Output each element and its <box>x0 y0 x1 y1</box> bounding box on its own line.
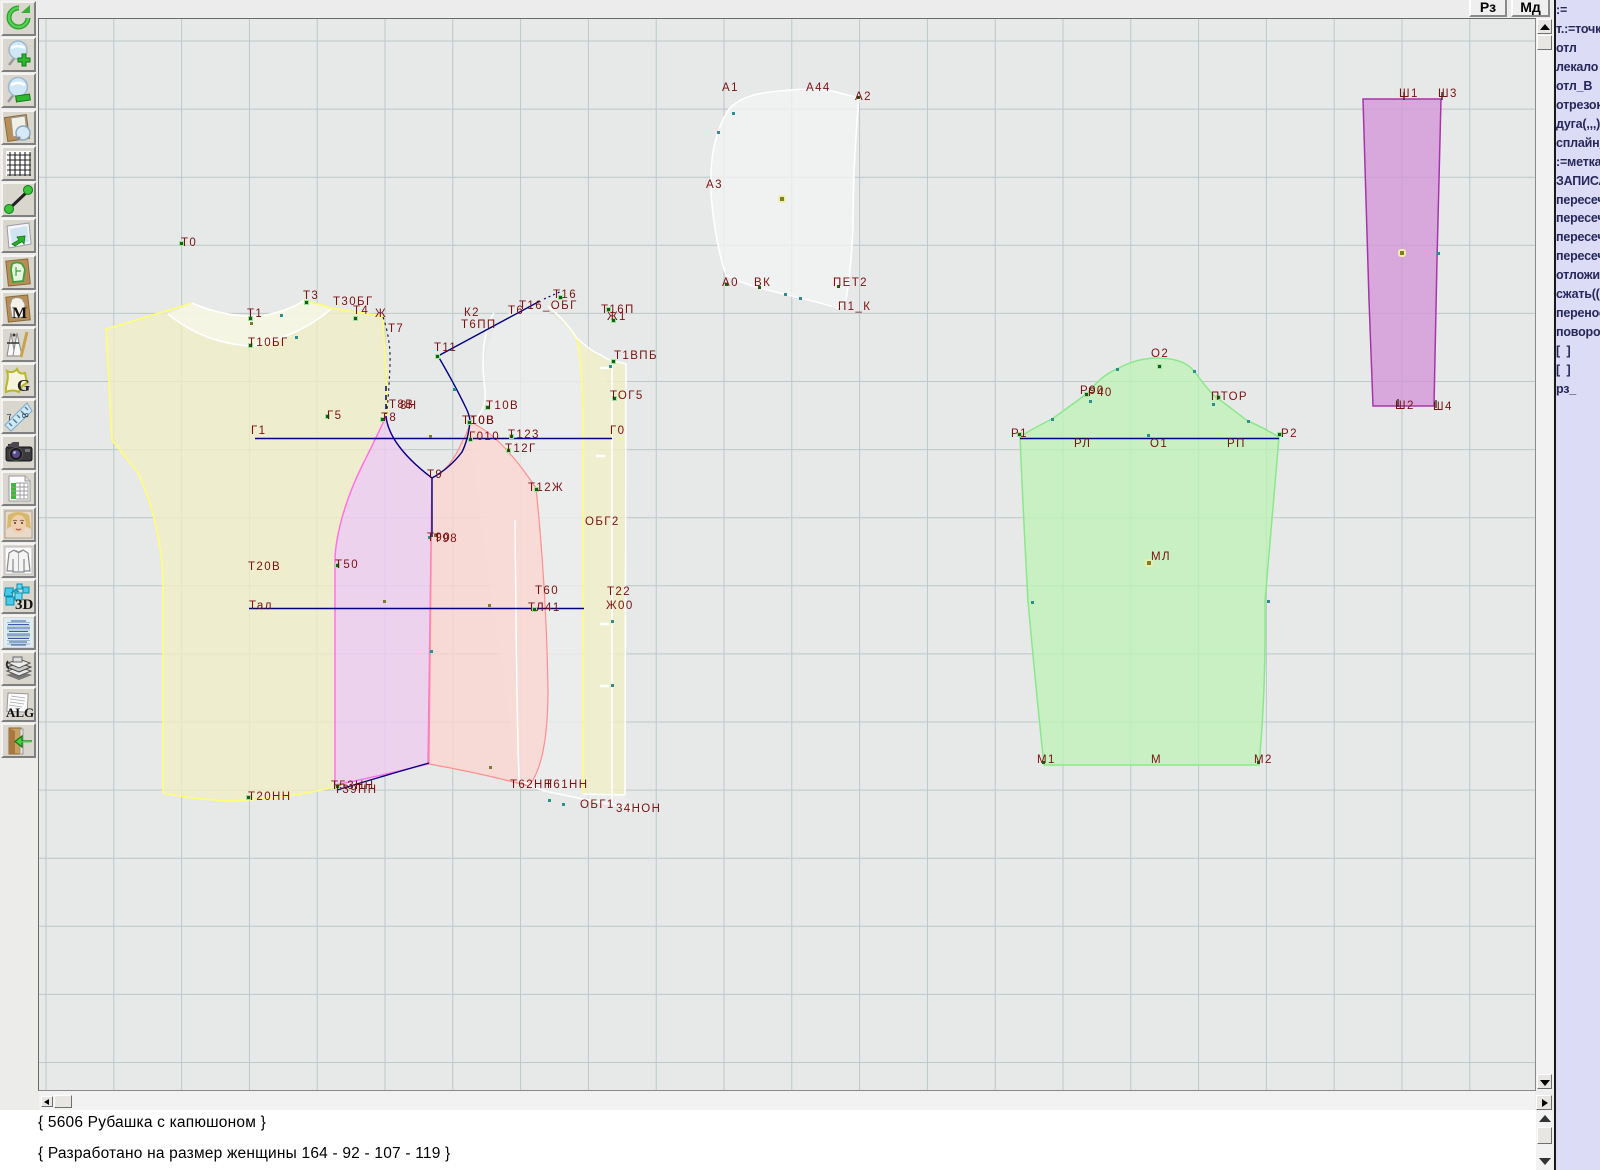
svg-text:Т6ПП: Т6ПП <box>461 319 497 331</box>
svg-text:П1_К: П1_К <box>838 301 871 313</box>
svg-text:Г1: Г1 <box>251 425 266 437</box>
svg-text:Т0В: Т0В <box>470 415 495 427</box>
svg-text:Т16_ОБГ: Т16_ОБГ <box>519 300 578 312</box>
svg-text:Ш3: Ш3 <box>1438 88 1458 100</box>
svg-text:Т7: Т7 <box>388 323 404 335</box>
svg-text:Т12Ж: Т12Ж <box>528 482 564 494</box>
svg-text:ПТОР: ПТОР <box>1211 391 1248 403</box>
svg-text:М: М <box>1151 754 1162 766</box>
svg-text:3D: 3D <box>15 597 34 612</box>
svg-text:Г0: Г0 <box>610 425 625 437</box>
svg-text:Ж1: Ж1 <box>607 311 627 323</box>
svg-text:Т4: Т4 <box>353 305 369 317</box>
svg-text:Т9: Т9 <box>427 469 443 481</box>
svg-text:Т50: Т50 <box>335 559 359 571</box>
svg-text:ТОГ5: ТОГ5 <box>610 390 644 402</box>
svg-text:Р40: Р40 <box>1088 387 1113 399</box>
svg-text:ПЕТ2: ПЕТ2 <box>833 277 868 289</box>
svg-text:ALG: ALG <box>6 705 34 720</box>
svg-text:Т1ВПБ: Т1ВПБ <box>614 350 658 362</box>
svg-text:ТЛ41: ТЛ41 <box>528 602 561 614</box>
svg-text:М2: М2 <box>1254 754 1273 766</box>
svg-text:8: 8 <box>20 412 31 419</box>
svg-text:ВК: ВК <box>754 277 771 289</box>
svg-text:Ш4: Ш4 <box>1433 401 1453 413</box>
svg-text:Ж: Ж <box>375 308 387 320</box>
svg-text:G: G <box>17 376 30 395</box>
svg-text:Тал: Тал <box>249 600 273 612</box>
svg-text:РЛ: РЛ <box>1074 438 1091 450</box>
svg-text:Т11: Т11 <box>434 342 457 354</box>
svg-text:34НОН: 34НОН <box>616 803 661 815</box>
svg-text:О2: О2 <box>1151 348 1169 360</box>
svg-text:Т0: Т0 <box>181 237 197 249</box>
svg-text:М1: М1 <box>1037 754 1056 766</box>
svg-text:Ш1: Ш1 <box>1399 88 1419 100</box>
svg-text:А0: А0 <box>722 277 739 289</box>
svg-text:Ш2: Ш2 <box>1395 400 1415 412</box>
svg-text:Ж00: Ж00 <box>606 600 634 612</box>
svg-text:Т22: Т22 <box>607 586 631 598</box>
svg-text:Т98: Т98 <box>434 533 458 545</box>
svg-text:Т60: Т60 <box>535 585 559 597</box>
svg-text:К2: К2 <box>464 307 480 319</box>
svg-text:ОБГ2: ОБГ2 <box>585 516 620 528</box>
svg-text:ОБГ1: ОБГ1 <box>580 799 615 811</box>
svg-text:8Н: 8Н <box>400 400 418 412</box>
svg-text:Г5: Г5 <box>327 410 342 422</box>
svg-text:А2: А2 <box>855 91 872 103</box>
svg-text:А1: А1 <box>722 82 739 94</box>
svg-text:О1: О1 <box>1150 438 1168 450</box>
svg-text:Т20НН: Т20НН <box>248 791 291 803</box>
svg-text:Т10В: Т10В <box>486 400 519 412</box>
svg-text:МЛ: МЛ <box>1151 551 1171 563</box>
svg-text:Р1: Р1 <box>1011 428 1028 440</box>
svg-text:Р2: Р2 <box>1281 428 1298 440</box>
svg-text:Т8: Т8 <box>381 412 397 424</box>
svg-text:M: M <box>12 305 27 322</box>
svg-text:А3: А3 <box>706 179 723 191</box>
svg-text:РП: РП <box>1227 438 1246 450</box>
svg-text:А44: А44 <box>806 82 831 94</box>
svg-text:Т1: Т1 <box>247 308 263 320</box>
svg-text:Т12Г: Т12Г <box>505 443 537 455</box>
svg-text:Т20В: Т20В <box>248 561 281 573</box>
svg-text:7: 7 <box>6 412 13 423</box>
svg-text:Т10БГ: Т10БГ <box>248 337 289 349</box>
svg-text:Т61НН: Т61НН <box>545 779 588 791</box>
svg-text:Г010: Г010 <box>469 431 500 443</box>
svg-text:Т123: Т123 <box>508 429 540 441</box>
svg-text:Т3: Т3 <box>303 290 319 302</box>
svg-text:Т39НН: Т39НН <box>334 784 377 796</box>
